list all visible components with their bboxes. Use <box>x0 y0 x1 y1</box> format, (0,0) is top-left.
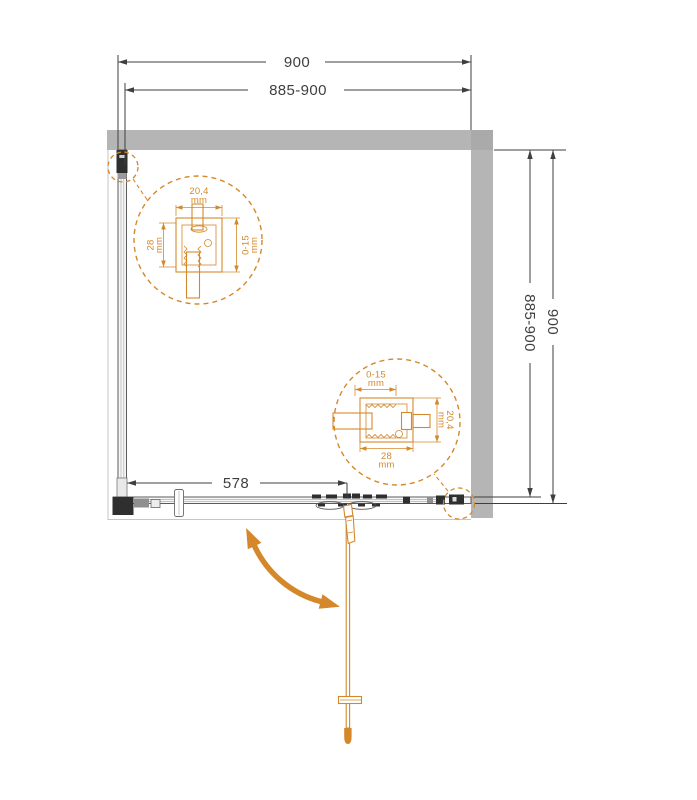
plan-view-svg: 900 885-900 885-900 900 578 <box>0 0 697 800</box>
corner-clip <box>151 500 160 508</box>
dim-label-fixed-panel: 578 <box>223 475 249 492</box>
left-glass-pane <box>118 150 127 497</box>
corner-connector <box>113 497 134 515</box>
left-bottom-sleeve <box>117 478 127 497</box>
detail-label-adjust-unit: mm <box>249 237 260 253</box>
dimension-fixed-panel: 578 <box>127 475 347 497</box>
dim-label-right-outer: 900 <box>544 309 561 335</box>
detail-label-width-unit: mm <box>378 460 394 471</box>
dim-label-top-outer: 900 <box>284 54 310 71</box>
panel-clip <box>403 497 410 504</box>
swing-arrowhead-down <box>319 594 340 608</box>
detail-label-depth-unit: mm <box>154 237 165 253</box>
dim-label-right-inner: 885-900 <box>521 294 538 352</box>
wall-corner-overlap <box>471 130 493 150</box>
door-hinge-upper <box>344 505 353 518</box>
corner-connector-arm <box>134 499 149 508</box>
bottom-glass-pane <box>113 497 471 504</box>
swing-arrowhead-up <box>246 528 261 549</box>
dimension-top-inner: 885-900 <box>125 82 471 165</box>
top-wall <box>107 130 493 150</box>
detail-label-width-unit: mm <box>191 195 207 206</box>
detail-label-height-unit: mm <box>436 412 447 428</box>
dim-label-top-inner: 885-900 <box>269 82 327 99</box>
shower-enclosure-technical-drawing: 900 885-900 885-900 900 578 <box>0 0 697 800</box>
right-wall <box>471 130 493 518</box>
door-open-position <box>339 505 362 745</box>
left-profile-cap <box>118 173 127 179</box>
door-bottom-pivot <box>344 728 351 744</box>
bottom-glass-panel <box>113 490 471 517</box>
detail-label-adjust-unit: mm <box>368 378 384 389</box>
left-wall-profile-slot <box>119 155 125 158</box>
door-glass-leaf <box>346 512 349 728</box>
left-glass-panel <box>117 150 128 497</box>
detail-callout-top-left: 20,4 mm 28 mm 0-15 mm <box>108 152 262 304</box>
door-swing-arrow <box>246 528 340 609</box>
